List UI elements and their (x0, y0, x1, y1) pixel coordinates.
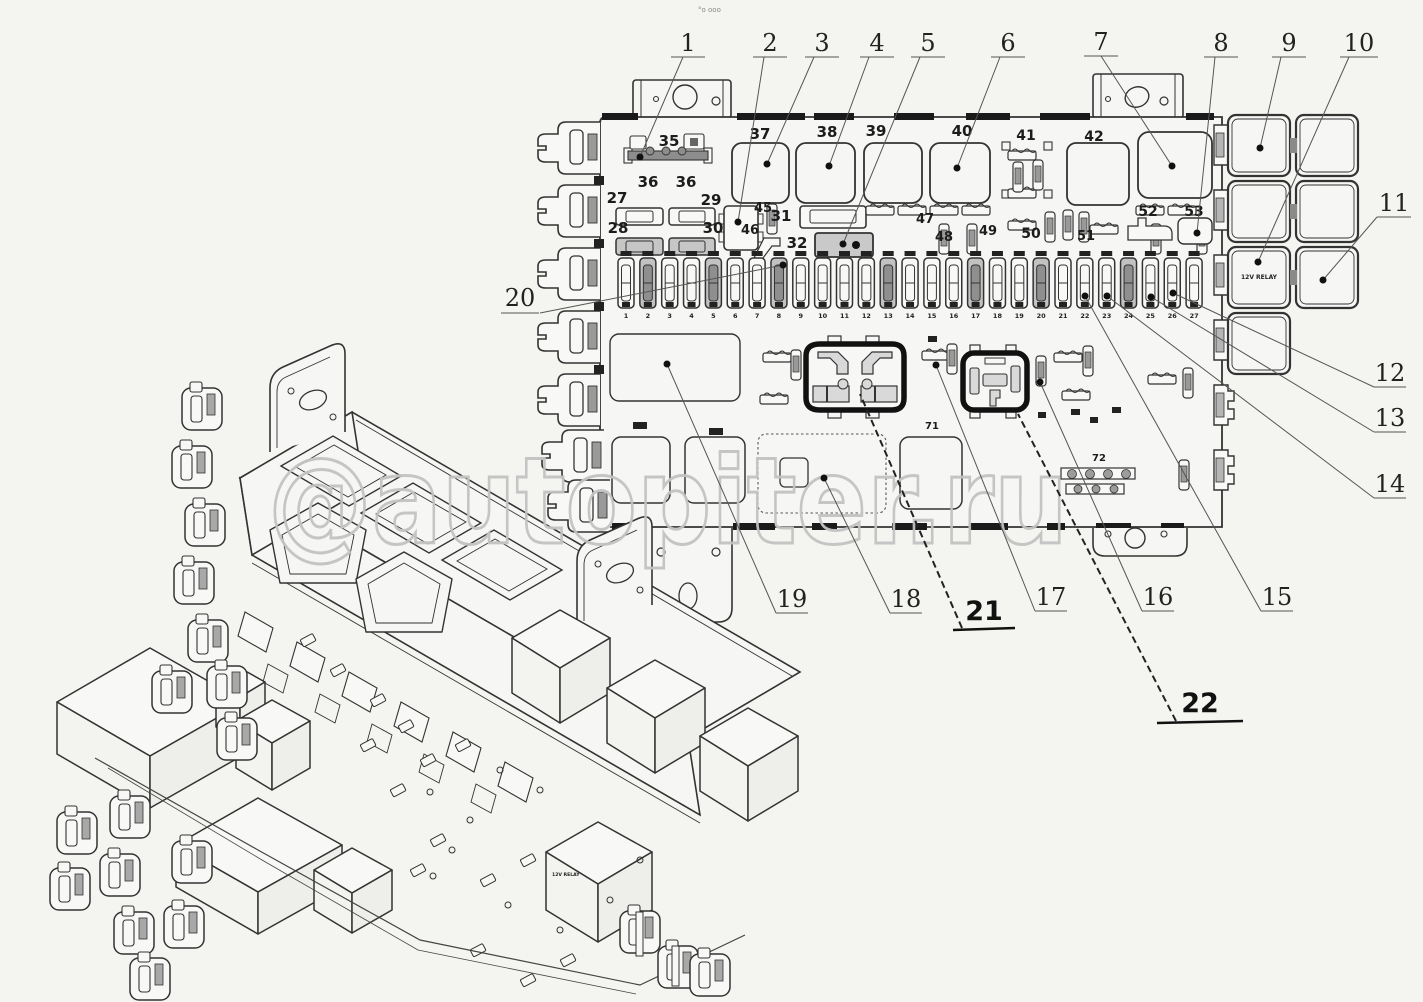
leader-dot (1194, 230, 1201, 237)
iso-small-part-5 (330, 663, 346, 677)
iso-small-part-11 (520, 973, 536, 987)
fuse-number-26: 26 (1168, 312, 1178, 320)
part-label-l35: 35 (659, 132, 680, 150)
leader-dot (637, 154, 644, 161)
leader-dot (1169, 163, 1176, 170)
relay-socket-grid: 12V RELAY (1228, 115, 1358, 374)
iso-relay-cube-8 (700, 708, 798, 821)
scanned-parts-diagram-page: 12V RELAY (0, 0, 1423, 1002)
leader-dot (664, 361, 671, 368)
part-label-l31: 31 (771, 207, 792, 225)
part-label-l46: 46 (741, 223, 759, 238)
callout-number-c15: 15 (1262, 583, 1293, 611)
leader-dot (826, 163, 833, 170)
iso-clip-row2-0 (263, 664, 288, 693)
connector-21-highlight (806, 336, 904, 418)
fuse-number-12: 12 (862, 312, 871, 320)
part-label-l45: 45 (754, 201, 772, 216)
fuse-number-16: 16 (949, 312, 959, 320)
relay-grid-cell-3 (1296, 181, 1358, 242)
iso-small-part-8 (480, 873, 496, 887)
iso-screw-0 (427, 789, 433, 795)
callout-number-c7: 7 (1093, 28, 1108, 56)
part-label-l49: 49 (979, 224, 997, 239)
callout-number-c6: 6 (1000, 29, 1015, 57)
part-label-l42: 42 (1084, 129, 1103, 145)
callout-underline (953, 628, 1015, 630)
callout-number-c12: 12 (1375, 359, 1406, 387)
callout-number-c21: 21 (965, 596, 1003, 627)
part-label-l72: 72 (1092, 453, 1106, 464)
iso-small-part-13 (430, 833, 446, 847)
iso-clip-row1-0 (238, 612, 273, 652)
relay-grid-cell-4: 12V RELAY (1228, 247, 1290, 308)
part-label-l38: 38 (817, 123, 838, 141)
fuse-number-23: 23 (1102, 312, 1111, 320)
iso-screw-6 (505, 902, 511, 908)
scan-artifact-text: °o ooo (698, 6, 721, 14)
iso-screw-7 (557, 927, 563, 933)
iso-screw-2 (467, 817, 473, 823)
iso-small-part-2 (420, 753, 436, 767)
connector-22-highlight (963, 345, 1027, 418)
leader-dot (1082, 293, 1089, 300)
leader-dot (933, 362, 940, 369)
callout-number-c8: 8 (1213, 29, 1228, 57)
fuse-number-5: 5 (711, 312, 716, 320)
leader-dot (954, 165, 961, 172)
part-label-l36b: 36 (676, 173, 697, 191)
iso-small-part-4 (300, 633, 316, 647)
leader-dot (821, 475, 828, 482)
callout-number-c2: 2 (762, 29, 777, 57)
iso-clip-row1-1 (290, 642, 325, 682)
fuse-number-24: 24 (1124, 312, 1134, 320)
leader-dot (840, 241, 847, 248)
part-label-l48: 48 (935, 230, 953, 245)
iso-clip-row1-4 (446, 732, 481, 772)
fuse-number-17: 17 (971, 312, 980, 320)
iso-screw-4 (537, 787, 543, 793)
part-label-l28: 28 (608, 219, 629, 237)
callout-number-c1: 1 (680, 29, 695, 57)
part-label-l50: 50 (1021, 226, 1041, 242)
callout-number-c9: 9 (1281, 29, 1296, 57)
iso-small-part-12 (560, 953, 576, 967)
iso-relay-label: 12V RELAY (552, 872, 580, 878)
callout-number-c14: 14 (1375, 470, 1406, 498)
watermark-text: @autopiter.ru (268, 433, 1068, 572)
part-label-l41: 41 (1016, 128, 1035, 144)
iso-small-part-7 (390, 783, 406, 797)
callout-number-c11: 11 (1379, 189, 1410, 217)
part-label-l51: 51 (1077, 229, 1095, 244)
callout-number-c19: 19 (777, 585, 808, 613)
leader-dot (1320, 277, 1327, 284)
callout-number-c18: 18 (891, 585, 922, 613)
part-label-l29: 29 (701, 191, 722, 209)
leader-dot (780, 262, 787, 269)
iso-clip-row1-2 (342, 672, 377, 712)
iso-small-part-9 (520, 853, 536, 867)
iso-clip-row2-1 (315, 694, 340, 723)
fuse-number-1: 1 (624, 312, 629, 320)
leader-dot (735, 219, 742, 226)
relay-grid-cell-1 (1296, 115, 1358, 176)
relay-grid-cell-5 (1296, 247, 1358, 308)
fuse-number-20: 20 (1037, 312, 1047, 320)
callout-number-c13: 13 (1375, 404, 1406, 432)
leader-dot (1104, 293, 1111, 300)
fuse-number-6: 6 (733, 312, 738, 320)
part-label-l53: 53 (1184, 204, 1203, 220)
fuse-number-8: 8 (777, 312, 782, 320)
iso-clip-row1-5 (498, 762, 533, 802)
part-label-l32: 32 (787, 234, 808, 252)
fuse-number-14: 14 (906, 312, 916, 320)
part-label-l27: 27 (607, 189, 628, 207)
fuse-number-15: 15 (927, 312, 937, 320)
fuse-number-22: 22 (1080, 312, 1089, 320)
iso-clip-row2-4 (471, 784, 496, 813)
callout-number-c3: 3 (814, 29, 829, 57)
leader-dot (1170, 290, 1177, 297)
callout-number-c16: 16 (1143, 583, 1174, 611)
watermark: @autopiter.ru (268, 433, 1068, 572)
part-label-l47: 47 (916, 212, 934, 227)
fuse-number-11: 11 (840, 312, 850, 320)
fuse-number-19: 19 (1015, 312, 1025, 320)
leader-dot (764, 161, 771, 168)
part-label-l30: 30 (703, 219, 724, 237)
iso-small-part-14 (410, 863, 426, 877)
iso-screw-1 (449, 847, 455, 853)
part-label-l36a: 36 (638, 173, 659, 191)
part-label-l71: 71 (925, 421, 939, 432)
fuse-number-18: 18 (993, 312, 1003, 320)
callout-number-c5: 5 (920, 29, 935, 57)
fuse-number-9: 9 (799, 312, 804, 320)
callout-number-c20: 20 (505, 284, 536, 312)
leader-dot (1037, 379, 1044, 386)
fuse-number-13: 13 (884, 312, 893, 320)
fuse-number-7: 7 (755, 312, 760, 320)
leader-dot (1255, 259, 1262, 266)
fuse-number-10: 10 (818, 312, 828, 320)
fuse-31 (800, 206, 866, 228)
fuse-number-27: 27 (1190, 312, 1199, 320)
fuse-number-4: 4 (689, 312, 694, 320)
fuse-number-21: 21 (1058, 312, 1068, 320)
fusebox-diagram-svg: 12V RELAY (0, 0, 1423, 1002)
fuse-number-25: 25 (1146, 312, 1156, 320)
fuse-number-2: 2 (646, 312, 651, 320)
iso-screw-5 (430, 873, 436, 879)
part-label-l52: 52 (1138, 204, 1157, 220)
callout-number-c22: 22 (1181, 688, 1219, 719)
fuse-number-3: 3 (667, 312, 672, 320)
leader-dot (1148, 294, 1155, 301)
iso-small-part-6 (360, 738, 376, 752)
callout-number-c17: 17 (1036, 583, 1067, 611)
relay-cell-label: 12V RELAY (1241, 274, 1278, 281)
callout-number-c10: 10 (1344, 29, 1375, 57)
leader-dot (1257, 145, 1264, 152)
callout-underline (1157, 721, 1243, 723)
part-label-l39: 39 (866, 122, 887, 140)
callout-number-c4: 4 (869, 29, 884, 57)
